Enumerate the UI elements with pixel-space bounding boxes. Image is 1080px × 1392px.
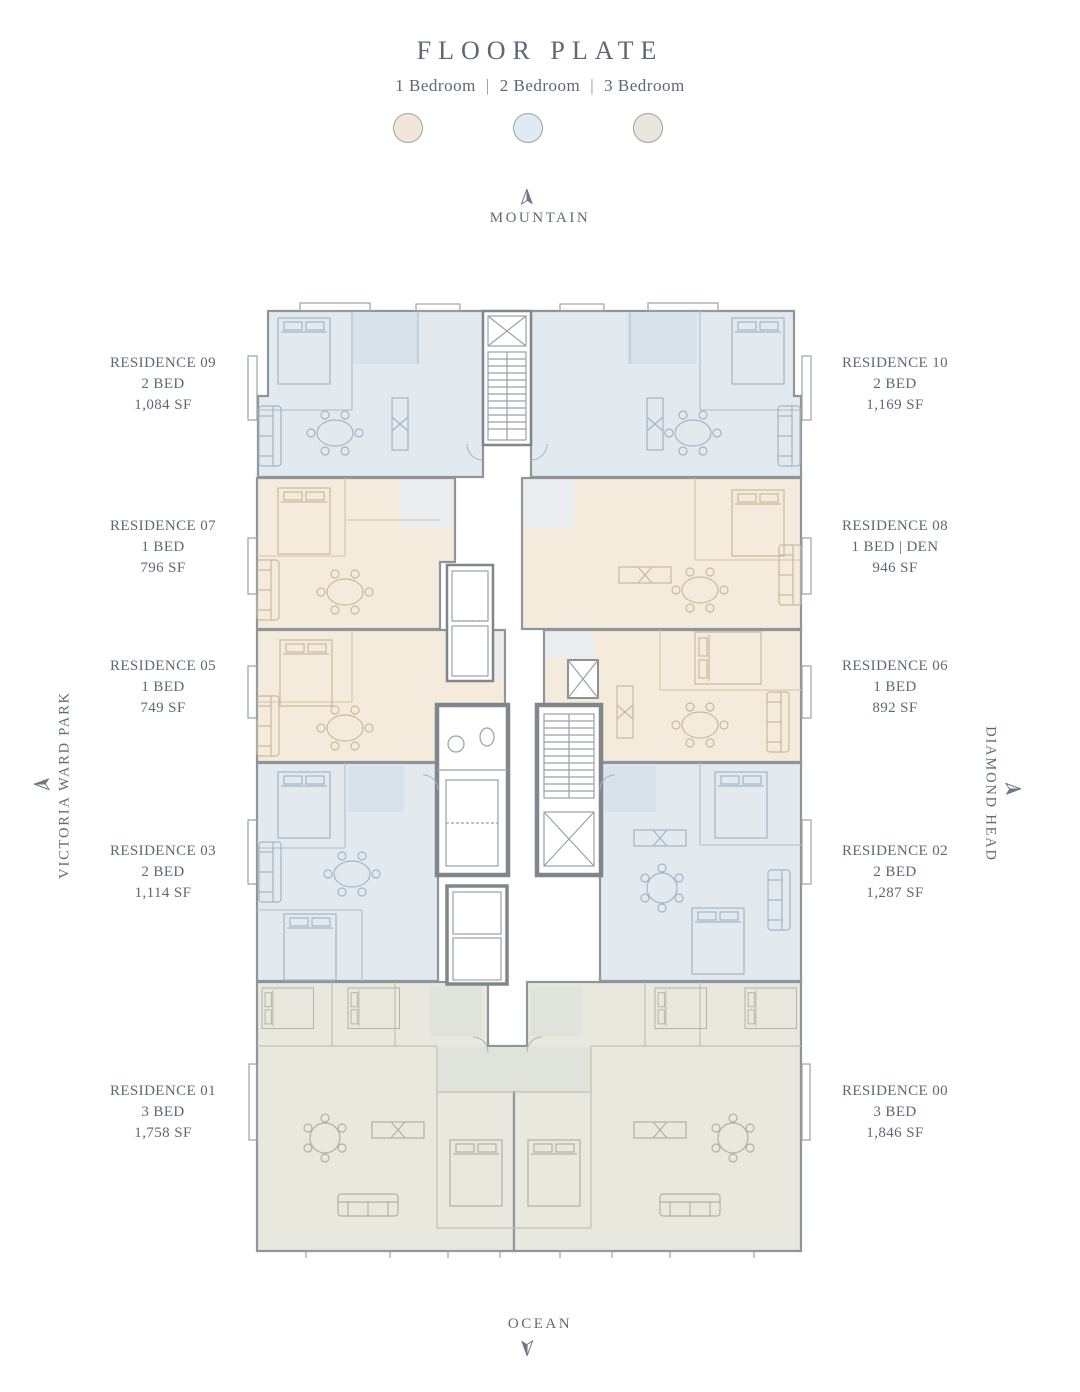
residence-area: 749 SF bbox=[58, 698, 268, 719]
residence-02-label: RESIDENCE 02 2 BED 1,287 SF bbox=[790, 841, 1000, 904]
legend-label-3-bedroom: 3 Bedroom bbox=[604, 76, 685, 95]
residence-beds: 3 BED bbox=[58, 1102, 268, 1123]
residence-beds: 2 BED bbox=[58, 374, 268, 395]
two-bedroom-swatch bbox=[513, 113, 543, 143]
legend-separator: | bbox=[590, 76, 594, 95]
residence-00-label: RESIDENCE 00 3 BED 1,846 SF bbox=[790, 1081, 1000, 1144]
residence-area: 1,846 SF bbox=[790, 1123, 1000, 1144]
residence-name: RESIDENCE 00 bbox=[790, 1081, 1000, 1102]
residence-beds: 1 BED bbox=[790, 677, 1000, 698]
residence-name: RESIDENCE 10 bbox=[790, 353, 1000, 374]
residence-area: 946 SF bbox=[790, 558, 1000, 579]
ocean-label: OCEAN bbox=[0, 1316, 1080, 1333]
residence-beds: 1 BED | DEN bbox=[790, 537, 1000, 558]
floor-plate-page: FLOOR PLATE 1 Bedroom|2 Bedroom|3 Bedroo… bbox=[0, 0, 1080, 1392]
residence-05-label: RESIDENCE 05 1 BED 749 SF bbox=[58, 656, 268, 719]
residence-beds: 1 BED bbox=[58, 677, 268, 698]
residence-name: RESIDENCE 03 bbox=[58, 841, 268, 862]
residence-area: 1,169 SF bbox=[790, 395, 1000, 416]
one-bedroom-swatch bbox=[393, 113, 423, 143]
residence-name: RESIDENCE 09 bbox=[58, 353, 268, 374]
residence-beds: 2 BED bbox=[790, 862, 1000, 883]
residence-10-label: RESIDENCE 10 2 BED 1,169 SF bbox=[790, 353, 1000, 416]
mountain-arrow-icon bbox=[518, 188, 536, 206]
residence-06-label: RESIDENCE 06 1 BED 892 SF bbox=[790, 656, 1000, 719]
residence-name: RESIDENCE 01 bbox=[58, 1081, 268, 1102]
residence-name: RESIDENCE 08 bbox=[790, 516, 1000, 537]
residence-area: 1,287 SF bbox=[790, 883, 1000, 904]
residence-area: 892 SF bbox=[790, 698, 1000, 719]
residence-beds: 2 BED bbox=[790, 374, 1000, 395]
residence-07-label: RESIDENCE 07 1 BED 796 SF bbox=[58, 516, 268, 579]
legend-separator: | bbox=[486, 76, 490, 95]
residence-beds: 2 BED bbox=[58, 862, 268, 883]
three-bedroom-swatch bbox=[633, 113, 663, 143]
victoria-ward-park-arrow-icon bbox=[33, 775, 51, 793]
residence-area: 796 SF bbox=[58, 558, 268, 579]
legend-label-2-bedroom: 2 Bedroom bbox=[500, 76, 581, 95]
residence-area: 1,758 SF bbox=[58, 1123, 268, 1144]
residence-name: RESIDENCE 06 bbox=[790, 656, 1000, 677]
residence-beds: 1 BED bbox=[58, 537, 268, 558]
legend-swatches bbox=[348, 113, 708, 143]
legend-label-1-bedroom: 1 Bedroom bbox=[395, 76, 476, 95]
legend-labels: 1 Bedroom|2 Bedroom|3 Bedroom bbox=[0, 76, 1080, 96]
residence-08-label: RESIDENCE 08 1 BED | DEN 946 SF bbox=[790, 516, 1000, 579]
residence-name: RESIDENCE 07 bbox=[58, 516, 268, 537]
residence-01-label: RESIDENCE 01 3 BED 1,758 SF bbox=[58, 1081, 268, 1144]
diamond-head-arrow-icon bbox=[1004, 780, 1022, 798]
floor-plan bbox=[246, 296, 812, 1258]
residence-area: 1,114 SF bbox=[58, 883, 268, 904]
residence-name: RESIDENCE 02 bbox=[790, 841, 1000, 862]
ocean-arrow-icon bbox=[518, 1339, 536, 1357]
residence-name: RESIDENCE 05 bbox=[58, 656, 268, 677]
residence-03-label: RESIDENCE 03 2 BED 1,114 SF bbox=[58, 841, 268, 904]
mountain-label: MOUNTAIN bbox=[0, 210, 1080, 227]
residence-09-label: RESIDENCE 09 2 BED 1,084 SF bbox=[58, 353, 268, 416]
page-title: FLOOR PLATE bbox=[0, 36, 1080, 66]
residence-area: 1,084 SF bbox=[58, 395, 268, 416]
residence-beds: 3 BED bbox=[790, 1102, 1000, 1123]
